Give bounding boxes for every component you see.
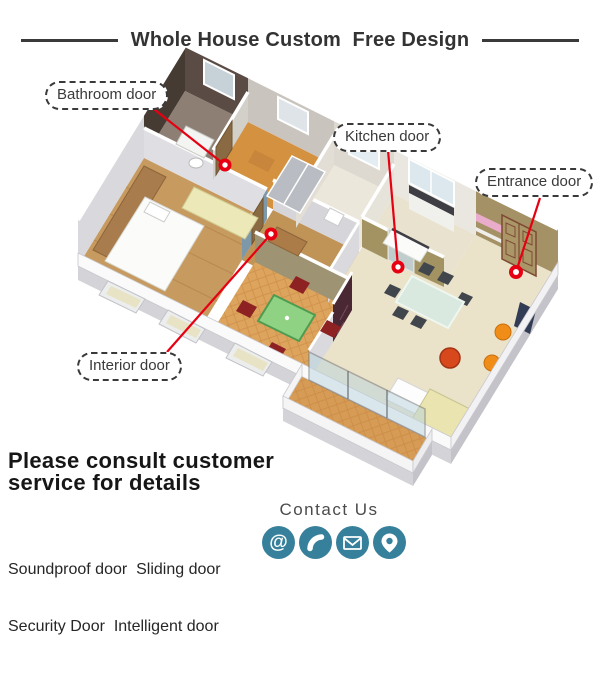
email-icon[interactable] bbox=[336, 526, 369, 559]
product-banner: Whole House Custom Free Design Bathroom … bbox=[0, 0, 600, 600]
banner-title: Whole House Custom Free Design bbox=[131, 29, 469, 52]
at-icon[interactable]: @ bbox=[262, 526, 295, 559]
location-icon[interactable] bbox=[373, 526, 406, 559]
consult-heading-line2: service for details bbox=[8, 472, 274, 494]
callout-kitchen-door: Kitchen door bbox=[333, 123, 441, 152]
consult-heading-line1: Please consult customer bbox=[8, 450, 274, 472]
title-divider-left bbox=[21, 39, 118, 42]
product-types-line1: Soundproof door Sliding door bbox=[8, 560, 221, 579]
callout-interior-door: Interior door bbox=[77, 352, 182, 381]
contact-icons: @ bbox=[262, 526, 406, 559]
door-marker-entrance bbox=[509, 265, 523, 279]
consult-heading: Please consult customer service for deta… bbox=[8, 450, 274, 494]
product-types: Soundproof door Sliding door Security Do… bbox=[8, 522, 221, 674]
callout-entrance-door: Entrance door bbox=[475, 168, 593, 197]
phone-icon[interactable] bbox=[299, 526, 332, 559]
title-divider-right bbox=[482, 39, 579, 42]
door-marker-kitchen bbox=[392, 261, 405, 274]
door-marker-interior bbox=[265, 228, 278, 241]
door-marker-bathroom bbox=[219, 159, 232, 172]
callout-bathroom-door: Bathroom door bbox=[45, 81, 168, 110]
contact-us-label: Contact Us bbox=[258, 500, 400, 520]
product-types-line2: Security Door Intelligent door bbox=[8, 617, 221, 636]
banner-title-row: Whole House Custom Free Design bbox=[0, 29, 600, 52]
